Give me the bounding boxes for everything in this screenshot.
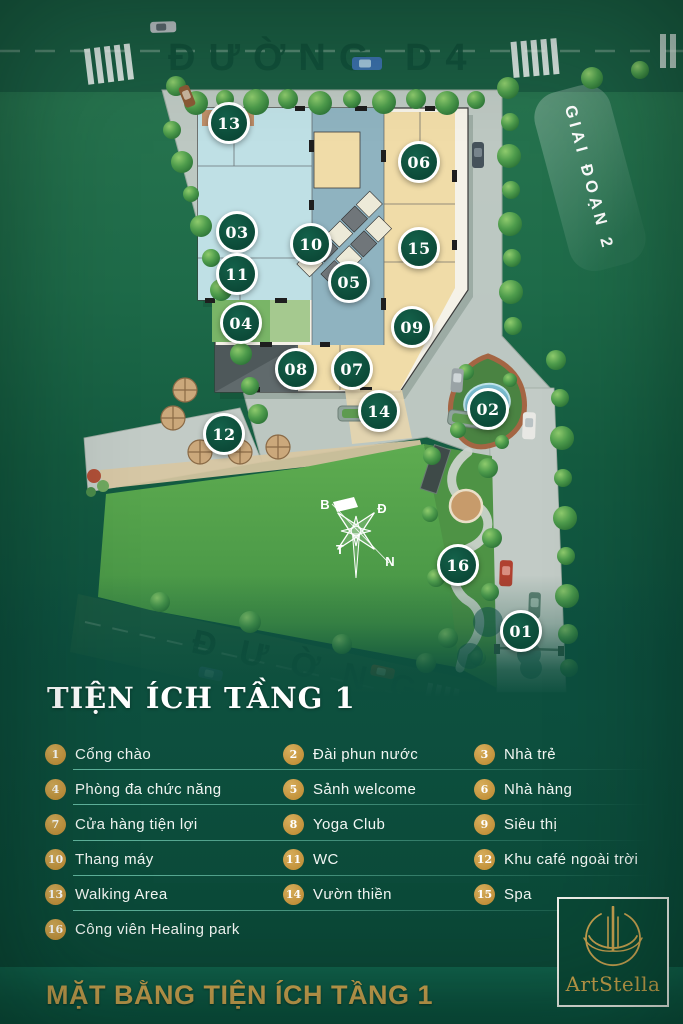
legend-item-label: Cửa hàng tiện lợi	[75, 816, 198, 833]
legend-item-number: 13	[45, 884, 66, 905]
legend-item-label: Spa	[504, 886, 532, 903]
compass-east-label: Đ	[377, 501, 386, 516]
legend-item-number: 16	[45, 919, 66, 940]
legend-item: 14 Vườn thiền	[283, 883, 392, 905]
map-marker-14: 14	[358, 390, 400, 432]
legend-item-label: Yoga Club	[313, 816, 385, 833]
artstella-logo-box: ArtStella	[557, 897, 669, 1007]
map-marker-01: 01	[500, 610, 542, 652]
legend-item: 6 Nhà hàng	[474, 778, 572, 800]
legend-item: 3 Nhà trẻ	[474, 743, 556, 765]
legend-item-label: Walking Area	[75, 886, 168, 903]
legend-item-label: Công viên Healing park	[75, 921, 240, 938]
legend-item: 5 Sảnh welcome	[283, 778, 416, 800]
legend-item-label: Đài phun nước	[313, 746, 418, 763]
site-plan-poster: ĐƯỜNG D4 GIAI ĐOẠN 2	[0, 0, 683, 1024]
map-marker-11: 11	[216, 253, 258, 295]
legend-title: TIỆN ÍCH TẦNG 1	[47, 681, 356, 715]
legend-item-label: Vườn thiền	[313, 886, 392, 903]
legend-item-number: 2	[283, 744, 304, 765]
legend-item-number: 5	[283, 779, 304, 800]
legend-item-label: Sảnh welcome	[313, 781, 416, 798]
map-marker-10: 10	[290, 223, 332, 265]
legend-item-number: 10	[45, 849, 66, 870]
map-marker-15: 15	[398, 227, 440, 269]
legend-item: 2 Đài phun nước	[283, 743, 418, 765]
legend-item: 15 Spa	[474, 883, 532, 905]
map-marker-07: 07	[331, 348, 373, 390]
map-marker-06: 06	[398, 141, 440, 183]
legend-item: 4 Phòng đa chức năng	[45, 778, 222, 800]
map-marker-02: 02	[467, 388, 509, 430]
legend-item-number: 6	[474, 779, 495, 800]
legend-divider	[73, 804, 650, 805]
legend-item: 13 Walking Area	[45, 883, 168, 905]
legend-divider	[73, 875, 650, 876]
legend-item-number: 15	[474, 884, 495, 905]
compass-south-label: N	[385, 554, 394, 569]
map-marker-05: 05	[328, 261, 370, 303]
legend-item-label: Nhà trẻ	[504, 746, 556, 763]
legend-item-label: Cổng chào	[75, 746, 151, 763]
legend-item: 9 Siêu thị	[474, 813, 557, 835]
legend-item-label: Khu café ngoài trời	[504, 851, 638, 868]
legend-item-label: WC	[313, 851, 339, 868]
road-top-label: ĐƯỜNG D4	[168, 35, 480, 79]
legend-item-number: 9	[474, 814, 495, 835]
footer-title: MẶT BẰNG TIỆN ÍCH TẦNG 1	[0, 980, 433, 1011]
legend-item-label: Siêu thị	[504, 816, 557, 833]
map-marker-08: 08	[275, 348, 317, 390]
legend-item-number: 4	[45, 779, 66, 800]
legend-item-number: 8	[283, 814, 304, 835]
legend-item-number: 12	[474, 849, 495, 870]
legend-divider	[73, 769, 650, 770]
map-marker-12: 12	[203, 413, 245, 455]
legend-item: 11 WC	[283, 848, 339, 870]
map-marker-16: 16	[437, 544, 479, 586]
legend-item: 1 Cổng chào	[45, 743, 151, 765]
compass-west-label: T	[336, 542, 344, 557]
road-top: ĐƯỜNG D4	[0, 0, 683, 92]
map-marker-03: 03	[216, 211, 258, 253]
legend-item: 10 Thang máy	[45, 848, 154, 870]
legend-item: 7 Cửa hàng tiện lợi	[45, 813, 198, 835]
legend-item-label: Thang máy	[75, 851, 154, 868]
legend-item: 16 Công viên Healing park	[45, 918, 240, 940]
compass-north-label: B	[320, 497, 329, 512]
legend-item-number: 7	[45, 814, 66, 835]
artstella-brand-name: ArtStella	[566, 972, 661, 996]
legend-item-number: 3	[474, 744, 495, 765]
phase2-badge: GIAI ĐOẠN 2	[529, 79, 652, 277]
legend-item-number: 1	[45, 744, 66, 765]
map-marker-09: 09	[391, 306, 433, 348]
legend-item-label: Phòng đa chức năng	[75, 781, 222, 798]
legend-item-number: 11	[283, 849, 304, 870]
map-marker-13: 13	[208, 102, 250, 144]
legend-item-label: Nhà hàng	[504, 781, 572, 798]
artstella-logo-icon	[573, 906, 653, 968]
legend-item-number: 14	[283, 884, 304, 905]
legend-item: 12 Khu café ngoài trời	[474, 848, 638, 870]
legend-divider	[73, 840, 650, 841]
map-marker-04: 04	[220, 302, 262, 344]
legend-item: 8 Yoga Club	[283, 813, 385, 835]
